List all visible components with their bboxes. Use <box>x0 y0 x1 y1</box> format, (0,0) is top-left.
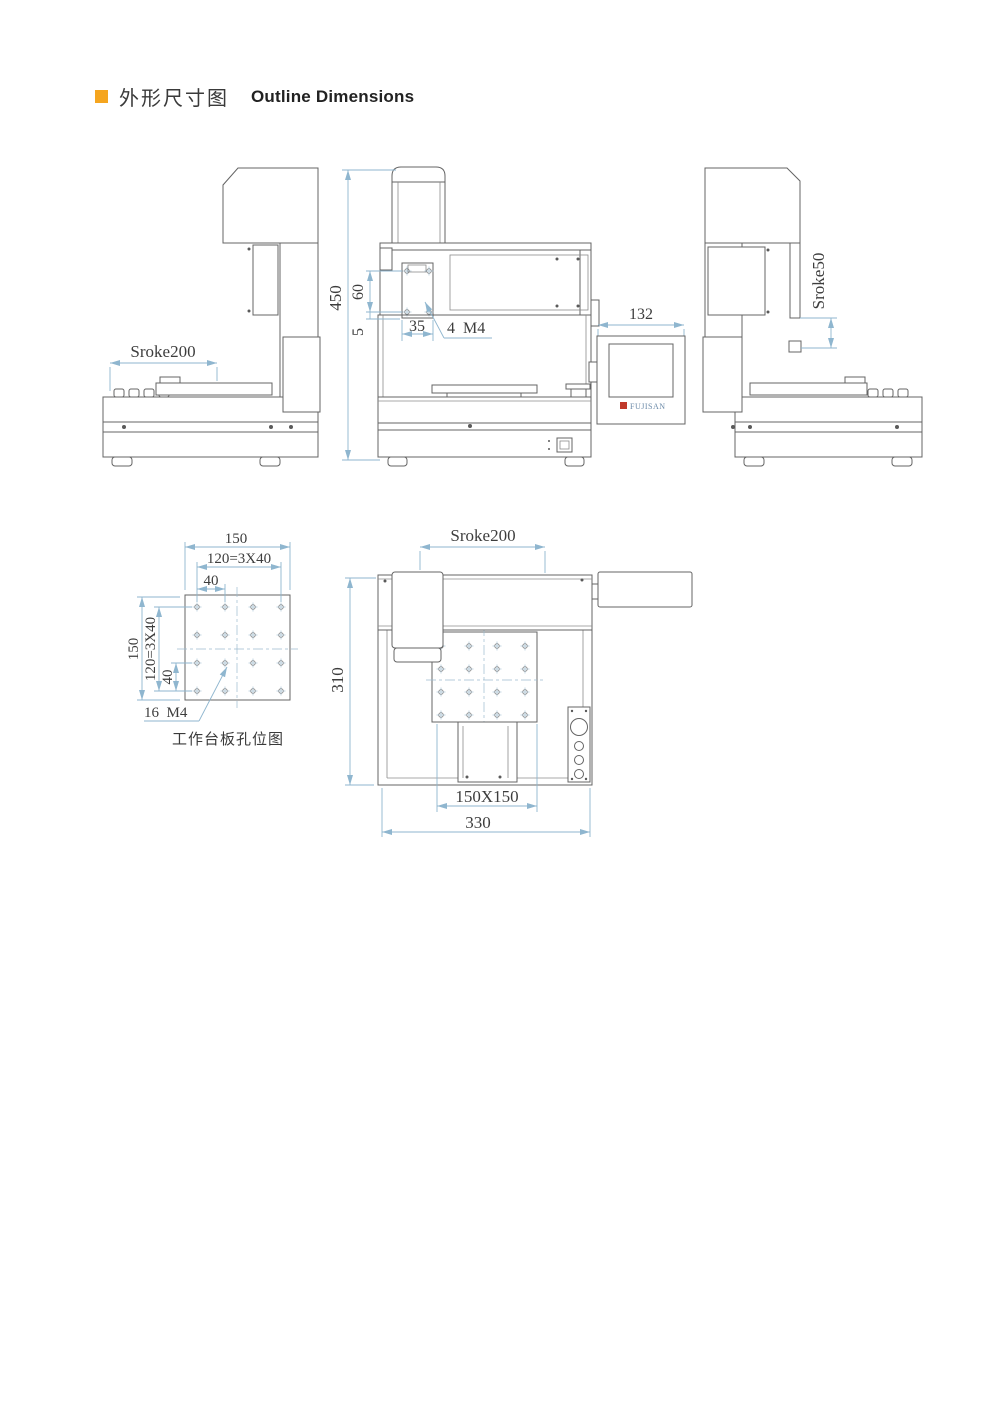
foot <box>744 457 764 466</box>
foot <box>112 457 132 466</box>
plate-diagram-caption: 工作台板孔位图 <box>172 730 284 748</box>
indicator-dot <box>548 448 550 450</box>
foot <box>892 457 912 466</box>
callout-label-16-m4: 16 M4 <box>144 705 188 721</box>
side-connector <box>589 362 597 382</box>
dim-label-120-3x40-v: 120=3X40 <box>143 617 159 681</box>
base-band <box>735 422 922 432</box>
y-carriage <box>392 572 443 662</box>
screw-icon <box>577 305 580 308</box>
brand-logo-text: FUJISAN <box>630 402 666 411</box>
base-top <box>735 397 922 422</box>
section-title-zh: 外形尺寸图 <box>119 82 229 111</box>
teach-pendant-top <box>598 572 692 607</box>
base-bottom <box>103 432 318 457</box>
dim-label-132: 132 <box>629 306 653 323</box>
dim-label-40: 40 <box>204 573 219 589</box>
foot <box>565 457 584 466</box>
foot <box>388 457 407 466</box>
dim-stroke-x: Sroke200 <box>420 526 545 573</box>
dim-label-stroke200: Sroke200 <box>130 342 195 361</box>
connector-row <box>868 389 908 397</box>
catalog-page: 外形尺寸图 Outline Dimensions <box>0 0 1000 1414</box>
purge-cup-flange <box>566 384 590 389</box>
screw-icon <box>767 249 770 252</box>
dim-label-5: 5 <box>350 328 367 336</box>
base-bottom <box>378 430 591 457</box>
worktable-front <box>432 385 537 393</box>
z-head <box>708 247 765 315</box>
z-slide-edge <box>790 243 800 318</box>
y-slide <box>458 722 517 782</box>
screw-icon <box>289 425 293 429</box>
foot <box>260 457 280 466</box>
top-view: Sroke200 310 150X150 330 <box>328 526 692 837</box>
dim-pendant-width: 132 <box>598 306 684 336</box>
screw-icon <box>731 425 735 429</box>
brand-logo-icon <box>620 402 627 409</box>
nozzle-holder <box>789 341 801 352</box>
worktable-top <box>432 632 537 722</box>
dim-label-120-3x40: 120=3X40 <box>207 551 271 567</box>
dim-label-310: 310 <box>328 667 347 693</box>
dim-label-stroke200: Sroke200 <box>450 526 515 545</box>
dim-label-150-v: 150 <box>126 638 142 661</box>
outline-dimensions-drawing: Sroke200 <box>0 0 1000 1414</box>
dim-label-330: 330 <box>465 813 491 832</box>
screw-icon <box>248 248 251 251</box>
dim-stroke-z: Sroke50 <box>800 253 837 348</box>
screw-icon <box>577 258 580 261</box>
worktable-plate <box>185 595 290 700</box>
screw-icon <box>248 310 251 313</box>
screw-icon <box>122 425 126 429</box>
plate-hole-diagram: 150 120=3X40 40 150 <box>126 531 298 748</box>
side-view-left: Sroke200 <box>103 168 320 466</box>
pendant-hook <box>592 584 598 599</box>
dim-label-60: 60 <box>350 284 367 300</box>
screw-icon <box>269 425 273 429</box>
screw-icon <box>895 425 899 429</box>
base-band <box>103 422 318 432</box>
accent-square-icon <box>95 90 108 103</box>
pendant-hook <box>591 300 599 326</box>
screw-icon <box>748 425 752 429</box>
indicator-dot <box>548 440 550 442</box>
column-base-block <box>703 337 742 412</box>
head-cover <box>705 168 800 243</box>
control-panel <box>568 707 590 782</box>
front-view: 450 60 5 35 <box>326 167 685 466</box>
beam-end-bracket <box>380 248 392 270</box>
head-cover <box>223 168 318 243</box>
dim-offset: 5 <box>350 312 400 336</box>
dim-label-35: 35 <box>409 318 425 335</box>
dim-label-stroke50: Sroke50 <box>809 253 828 310</box>
table-tab <box>845 377 865 383</box>
base-band <box>378 423 591 430</box>
screw-icon <box>581 579 584 582</box>
screw-icon <box>767 311 770 314</box>
base-bottom <box>735 432 922 457</box>
section-title: 外形尺寸图 Outline Dimensions <box>95 82 414 111</box>
dim-label-450: 450 <box>326 285 345 311</box>
screw-icon <box>384 580 387 583</box>
worktable-side <box>750 383 867 395</box>
section-title-en: Outline Dimensions <box>251 87 414 107</box>
dim-label-40-v: 40 <box>160 670 176 685</box>
table-tab <box>160 377 180 383</box>
column-base-block <box>283 337 320 412</box>
worktable-lip <box>447 393 521 397</box>
dim-depth: 310 <box>328 578 376 785</box>
screw-icon <box>556 305 559 308</box>
dim-hole-spacing-h: 35 <box>402 318 433 341</box>
dim-label-150: 150 <box>225 531 248 547</box>
screw-icon <box>468 424 472 428</box>
z-head <box>253 245 278 315</box>
screw-icon <box>556 258 559 261</box>
dim-label-150x150: 150X150 <box>455 787 518 806</box>
callout-label-4-m4: 4 M4 <box>447 320 485 337</box>
side-view-right: Sroke50 <box>703 168 922 466</box>
teach-pendant: FUJISAN <box>597 336 685 424</box>
worktable-side <box>156 383 272 395</box>
